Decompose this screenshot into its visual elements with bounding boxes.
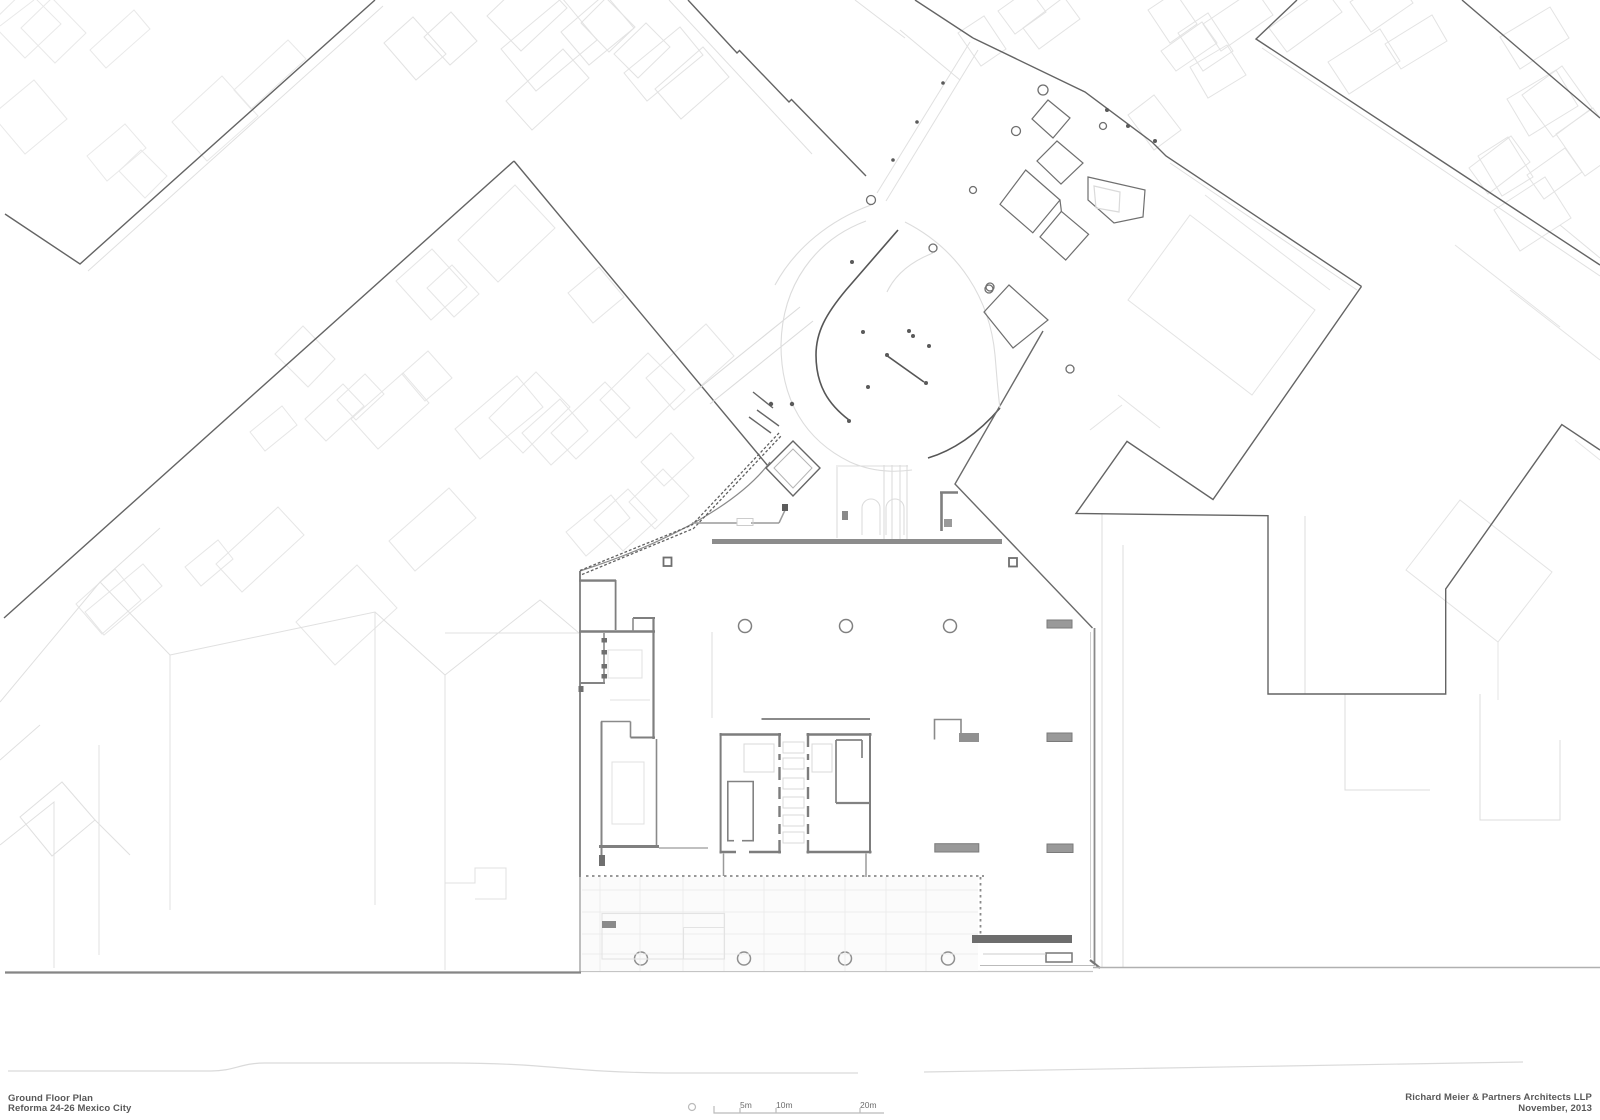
svg-text:10m: 10m <box>776 1100 793 1110</box>
svg-text:20m: 20m <box>860 1100 877 1110</box>
svg-text:5m: 5m <box>740 1100 752 1110</box>
